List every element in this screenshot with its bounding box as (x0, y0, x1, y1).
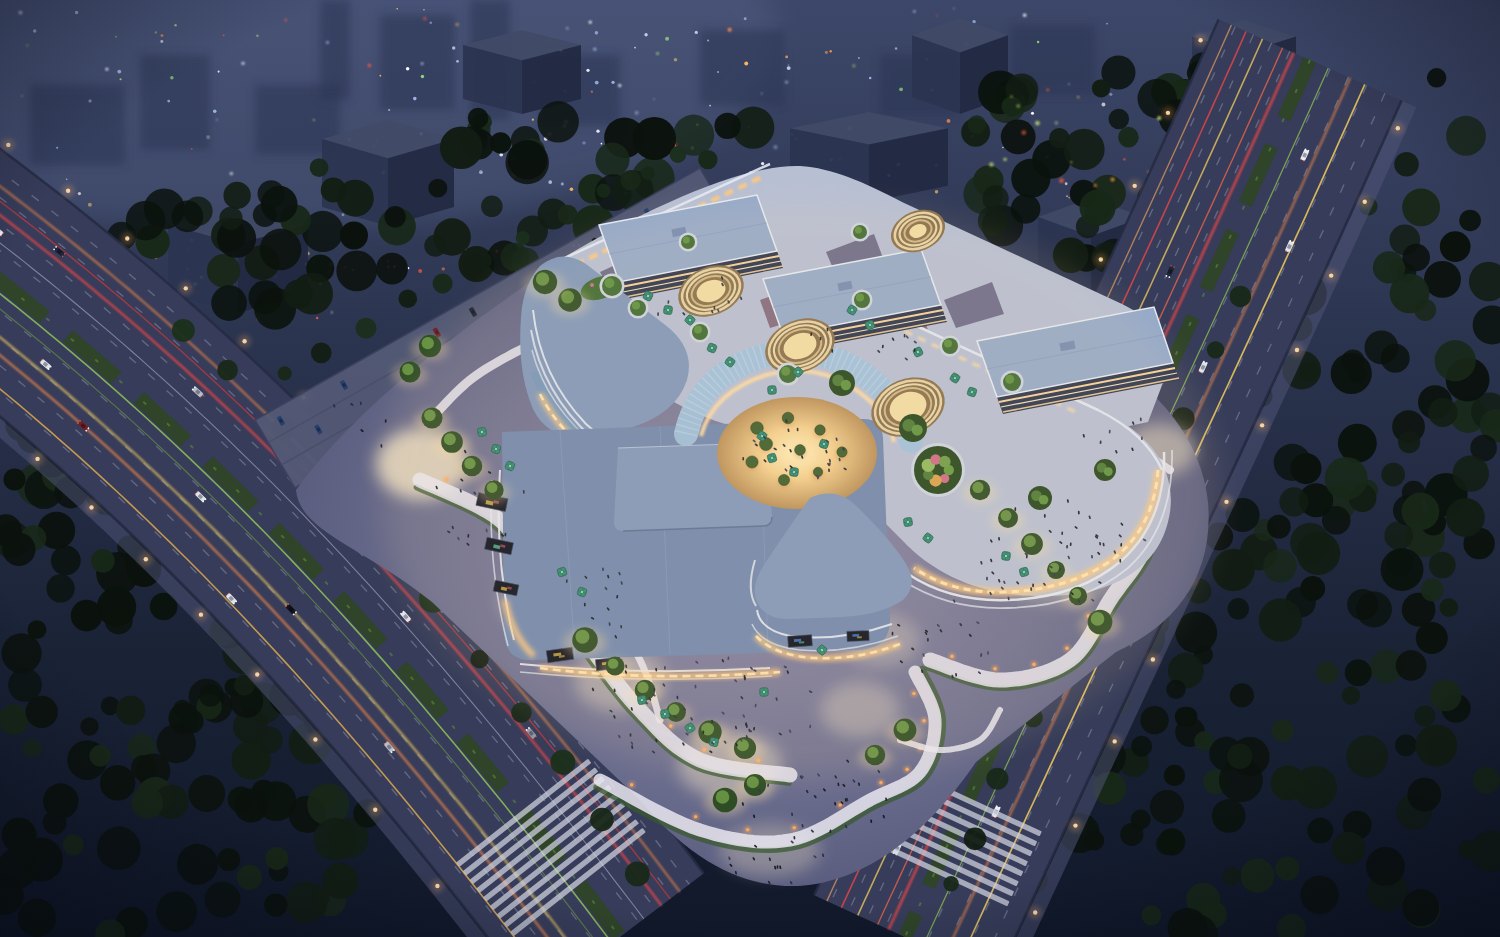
atmosphere-effects (0, 0, 1500, 937)
aerial-night-render (0, 0, 1500, 937)
vignette (0, 0, 1500, 937)
scene-svg (0, 0, 1500, 937)
